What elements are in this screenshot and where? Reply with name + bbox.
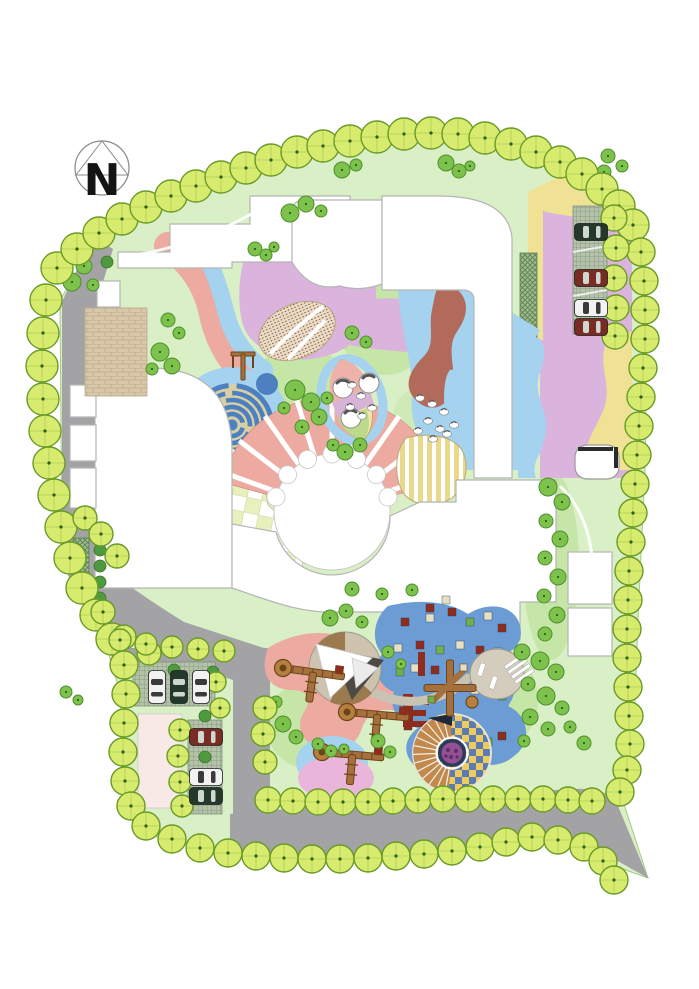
tree-shrub <box>531 652 549 670</box>
brick-plaza <box>85 308 147 396</box>
tree-canopy <box>616 730 644 758</box>
tree-canopy <box>105 544 129 568</box>
mosaic-square <box>426 614 434 622</box>
tree-shrub <box>345 326 359 340</box>
compass-label: N <box>84 155 121 206</box>
tree-shrub <box>552 531 568 547</box>
tree-canopy <box>355 789 381 815</box>
tree-shrub <box>173 327 185 339</box>
tree-shrub <box>537 687 555 705</box>
tree-shrub <box>350 159 362 171</box>
bush <box>101 256 113 268</box>
tree-shrub <box>161 313 175 327</box>
mosaic-square <box>484 612 492 620</box>
tree-canopy <box>91 600 115 624</box>
tree-shrub <box>577 736 591 750</box>
tree-shrub <box>518 735 530 747</box>
tree-canopy <box>613 644 641 672</box>
tree-shrub <box>339 744 349 754</box>
tree-canopy <box>161 636 183 658</box>
mosaic-square <box>416 641 424 649</box>
tree-shrub <box>555 701 569 715</box>
tree-shrub <box>616 160 628 172</box>
mosaic-square <box>426 604 434 612</box>
pebble <box>443 431 452 437</box>
tree-shrub <box>295 420 309 434</box>
parked-car <box>190 729 223 746</box>
tree-canopy <box>505 786 531 812</box>
parked-car <box>190 788 223 805</box>
tree-canopy <box>45 511 77 543</box>
tree-canopy <box>530 786 556 812</box>
tree-shrub <box>438 155 454 171</box>
pebble <box>346 404 355 410</box>
tree-canopy <box>382 842 410 870</box>
maze-entry-node <box>256 373 278 395</box>
tree-canopy <box>518 823 546 851</box>
tree-shrub <box>601 149 615 163</box>
tree-canopy <box>455 786 481 812</box>
building-west-balcony-2 <box>70 425 96 461</box>
tree-shrub <box>151 343 169 361</box>
tree-shrub <box>87 279 99 291</box>
tree-shrub <box>521 677 535 691</box>
bush <box>94 560 106 572</box>
tree-shrub <box>337 444 353 460</box>
tree-canopy <box>187 638 209 660</box>
parked-car <box>575 319 608 336</box>
tree-shrub <box>538 551 552 565</box>
tree-shrub <box>356 616 368 628</box>
pebble <box>450 422 459 428</box>
mosaic-square <box>401 618 409 626</box>
tree-shrub <box>522 709 538 725</box>
tree-canopy <box>430 786 456 812</box>
tree-canopy <box>614 673 642 701</box>
tree-shrub <box>549 607 565 623</box>
pebble <box>368 405 377 411</box>
tree-shrub <box>371 734 385 748</box>
tree-canopy <box>354 844 382 872</box>
tree-shrub <box>345 582 359 596</box>
tree-canopy <box>438 837 466 865</box>
tree-canopy <box>330 789 356 815</box>
tree-canopy <box>158 825 186 853</box>
tree-canopy <box>614 586 642 614</box>
tree-canopy <box>253 750 277 774</box>
tree-shrub <box>554 494 570 510</box>
tree-shrub <box>514 644 530 660</box>
tree-shrub <box>465 161 475 171</box>
tree-canopy <box>54 542 86 574</box>
parked-car <box>575 224 608 241</box>
building-east-block-1 <box>568 552 612 604</box>
mosaic-square <box>466 618 474 626</box>
landscape-site-plan: N <box>0 0 699 989</box>
pebble <box>414 428 423 434</box>
tree-canopy <box>29 415 61 447</box>
tree-canopy <box>109 629 131 651</box>
tree-canopy <box>492 828 520 856</box>
tree-shrub <box>298 196 314 212</box>
tree-shrub <box>548 664 564 680</box>
tree-shrub <box>396 659 406 669</box>
tree-shrub <box>541 722 555 736</box>
tree-canopy <box>627 238 655 266</box>
mosaic-square <box>394 644 402 652</box>
tree-canopy <box>270 844 298 872</box>
pebble <box>428 401 437 407</box>
tree-canopy <box>27 383 59 415</box>
tree-shrub <box>564 721 576 733</box>
tree-shrub <box>384 746 396 758</box>
tree-canopy <box>255 787 281 813</box>
tree-canopy <box>213 640 235 662</box>
tree-canopy <box>410 840 438 868</box>
tree-canopy <box>613 615 641 643</box>
tree-canopy <box>251 722 275 746</box>
tree-canopy <box>579 788 605 814</box>
tree-shrub <box>321 392 333 404</box>
tree-canopy <box>625 412 653 440</box>
pebble <box>424 418 433 424</box>
tree-shrub <box>360 336 372 348</box>
mosaic-square <box>411 664 419 672</box>
tree-canopy <box>27 317 59 349</box>
tree-canopy <box>30 284 62 316</box>
tree-shrub <box>289 730 303 744</box>
tree-canopy <box>600 866 628 894</box>
tree-shrub <box>269 242 279 252</box>
tree-canopy <box>405 787 431 813</box>
tree-canopy <box>298 845 326 873</box>
tree-canopy <box>214 839 242 867</box>
tree-canopy <box>109 738 137 766</box>
tree-shrub <box>550 569 566 585</box>
tree-canopy <box>615 702 643 730</box>
tree-shrub <box>539 478 557 496</box>
parked-car <box>190 769 223 786</box>
building-annex-small <box>97 281 120 307</box>
tree-shrub <box>312 738 324 750</box>
tree-shrub <box>73 695 83 705</box>
tree-canopy <box>169 719 191 741</box>
tree-canopy <box>242 842 270 870</box>
tree-canopy <box>619 499 647 527</box>
tree-canopy <box>380 788 406 814</box>
tree-canopy <box>110 709 138 737</box>
mosaic-square <box>498 732 506 740</box>
tree-shrub <box>452 164 466 178</box>
tree-shrub <box>538 627 552 641</box>
tree-shrub <box>406 584 418 596</box>
tree-canopy <box>631 296 659 324</box>
tree-shrub <box>376 588 388 600</box>
tree-canopy <box>38 479 70 511</box>
tree-canopy <box>305 789 331 815</box>
tree-canopy <box>169 771 191 793</box>
parked-car <box>171 671 188 704</box>
tree-canopy <box>26 350 58 382</box>
mosaic-square <box>442 596 450 604</box>
tree-canopy <box>111 767 139 795</box>
pebble <box>357 393 366 399</box>
mosaic-square <box>431 666 439 674</box>
tree-shrub <box>60 686 72 698</box>
mosaic-square <box>436 646 444 654</box>
mosaic-square <box>498 624 506 632</box>
pebble <box>358 413 367 419</box>
building-east-block-2 <box>568 608 612 656</box>
mosaic-square <box>448 608 456 616</box>
pebble <box>416 395 425 401</box>
tree-canopy <box>167 745 189 767</box>
tree-canopy <box>110 651 138 679</box>
tree-canopy <box>326 845 354 873</box>
tree-shrub <box>275 716 291 732</box>
tree-shrub <box>537 589 551 603</box>
tree-canopy <box>544 826 572 854</box>
tree-canopy <box>135 633 157 655</box>
tree-shrub <box>539 514 553 528</box>
north-compass: N <box>75 141 129 206</box>
mosaic-square <box>456 641 464 649</box>
stepping-ball <box>359 373 379 393</box>
parked-car <box>575 300 608 317</box>
tree-canopy <box>466 833 494 861</box>
parked-car <box>193 671 210 704</box>
tree-canopy <box>627 383 655 411</box>
tree-canopy <box>617 528 645 556</box>
pebble <box>436 426 445 432</box>
parked-car <box>149 671 166 704</box>
tree-canopy <box>629 354 657 382</box>
tree-canopy <box>480 786 506 812</box>
pebble <box>440 409 449 415</box>
tree-canopy <box>631 325 659 353</box>
tree-shrub <box>281 204 299 222</box>
tree-shrub <box>382 646 394 658</box>
tree-shrub <box>311 409 327 425</box>
pebble <box>429 436 438 442</box>
tree-canopy <box>615 557 643 585</box>
bush <box>199 710 211 722</box>
pebble <box>348 382 357 388</box>
tree-shrub <box>322 610 338 626</box>
tree-shrub <box>315 205 327 217</box>
parked-car <box>575 270 608 287</box>
tree-shrub <box>325 745 337 757</box>
tree-shrub <box>146 363 158 375</box>
building-west-balcony-3 <box>70 468 96 508</box>
tree-canopy <box>555 787 581 813</box>
tree-shrub <box>278 402 290 414</box>
tree-canopy <box>606 778 634 806</box>
tree-canopy <box>623 441 651 469</box>
tree-canopy <box>89 522 113 546</box>
tree-shrub <box>353 438 367 452</box>
tree-shrub <box>339 604 353 618</box>
tree-canopy <box>280 788 306 814</box>
tree-canopy <box>33 447 65 479</box>
east-pavilion <box>575 445 619 479</box>
tree-shrub <box>285 380 305 400</box>
tree-shrub <box>302 393 320 411</box>
tree-canopy <box>186 834 214 862</box>
tree-canopy <box>112 680 140 708</box>
tree-canopy <box>253 696 277 720</box>
tree-shrub <box>164 358 180 374</box>
tree-canopy <box>621 470 649 498</box>
mosaic-circle-plaza <box>413 714 491 792</box>
tree-shrub <box>334 162 350 178</box>
tree-canopy <box>630 267 658 295</box>
building-north-center <box>292 200 382 289</box>
tree-canopy <box>210 698 230 718</box>
tree-canopy <box>132 812 160 840</box>
tree-shrub <box>327 439 339 451</box>
bush <box>199 751 211 763</box>
